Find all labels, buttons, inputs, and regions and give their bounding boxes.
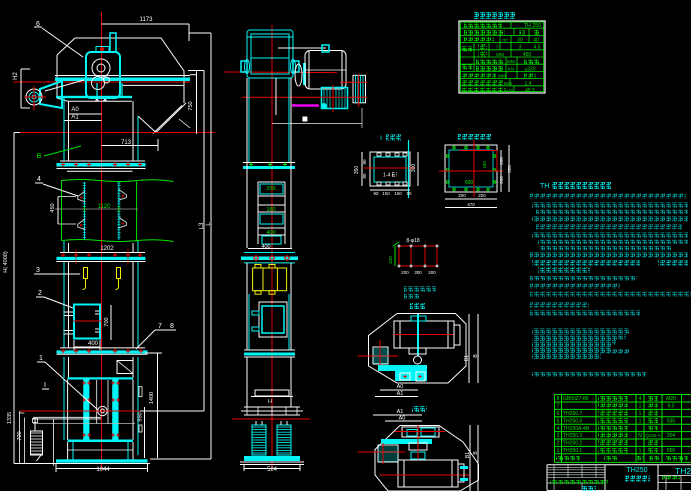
svg-text:470: 470	[467, 202, 475, 207]
svg-text:3: 3	[36, 267, 40, 274]
svg-text:150: 150	[394, 191, 402, 196]
svg-text:B1: B1	[465, 452, 471, 458]
svg-text:750: 750	[188, 101, 194, 110]
svg-text:8: 8	[170, 323, 174, 330]
svg-text:1.4: 1.4	[525, 81, 532, 87]
svg-text:1-4: 1-4	[383, 173, 390, 179]
svg-text:MM: MM	[496, 52, 504, 57]
svg-text:I: I	[380, 135, 382, 142]
svg-text:420: 420	[388, 256, 393, 264]
svg-text:6: 6	[557, 411, 560, 417]
svg-text:1: 1	[639, 411, 642, 417]
svg-text:TH250A-4B: TH250A-4B	[563, 426, 590, 432]
svg-text:A1: A1	[397, 391, 404, 397]
svg-text:4: 4	[639, 396, 642, 402]
svg-text:GB5027-86: GB5027-86	[563, 396, 589, 402]
svg-text:L3: L3	[199, 222, 205, 229]
svg-text:M20: M20	[666, 396, 676, 402]
svg-text:TH250.6: TH250.6	[563, 418, 582, 424]
svg-text:N: N	[638, 433, 642, 439]
svg-text:A0: A0	[399, 416, 406, 422]
svg-text:7: 7	[557, 404, 560, 410]
svg-text:TH250.3: TH250.3	[563, 433, 582, 439]
svg-text:80: 80	[362, 159, 367, 165]
svg-text:950: 950	[138, 412, 144, 421]
svg-text:1: 1	[639, 448, 642, 454]
svg-text:1: 1	[639, 418, 642, 424]
svg-text:I-I: I-I	[268, 399, 273, 405]
svg-text:1202: 1202	[100, 246, 114, 252]
svg-text:TH250.1: TH250.1	[563, 448, 582, 454]
svg-text:180: 180	[266, 207, 275, 213]
svg-text:H2: H2	[13, 72, 19, 80]
svg-text:MM: MM	[498, 74, 506, 79]
svg-text:40: 40	[533, 37, 539, 43]
svg-text:204: 204	[667, 433, 676, 439]
svg-text:80: 80	[362, 173, 367, 179]
svg-text:2: 2	[38, 290, 42, 297]
svg-text:400: 400	[261, 244, 270, 250]
svg-text:350: 350	[354, 166, 360, 175]
svg-text:1173: 1173	[140, 17, 154, 23]
svg-text:90: 90	[406, 191, 412, 196]
svg-text:TH2: TH2	[675, 466, 691, 476]
svg-text:1400: 1400	[149, 392, 155, 404]
svg-text:r/m: r/m	[507, 88, 514, 93]
svg-text:1: 1	[39, 355, 43, 362]
svg-text:535: 535	[667, 418, 676, 424]
svg-text:1335: 1335	[7, 412, 13, 424]
svg-text:200: 200	[478, 193, 486, 198]
svg-text:200: 200	[458, 193, 466, 198]
svg-text:160: 160	[482, 161, 487, 169]
svg-text:655: 655	[667, 448, 676, 454]
svg-text:TH250: TH250	[626, 467, 647, 474]
svg-text:2: 2	[557, 441, 560, 447]
svg-text:520: 520	[507, 165, 512, 173]
svg-text:450: 450	[50, 203, 56, 212]
svg-text:524: 524	[267, 467, 278, 473]
svg-text:1: 1	[557, 448, 560, 454]
svg-text:200: 200	[401, 270, 409, 275]
svg-text:TH250.7: TH250.7	[563, 411, 582, 417]
svg-text:A0: A0	[397, 384, 404, 390]
svg-text:300: 300	[411, 164, 417, 173]
svg-text:3: 3	[557, 433, 560, 439]
svg-text:1: 1	[639, 404, 642, 410]
svg-text:TH: TH	[540, 183, 549, 190]
svg-text:≥320: ≥320	[524, 66, 535, 72]
svg-text:4: 4	[557, 426, 560, 432]
svg-text:150: 150	[382, 191, 390, 196]
svg-text:200: 200	[499, 157, 504, 165]
svg-text:m³: m³	[502, 37, 508, 42]
svg-text:600: 600	[465, 180, 474, 186]
svg-text:30: 30	[517, 37, 523, 43]
svg-text:90: 90	[373, 191, 379, 196]
svg-text:I: I	[44, 382, 46, 389]
svg-text:MM: MM	[507, 59, 515, 64]
svg-text:3: 3	[519, 45, 522, 51]
svg-text:9.0: 9.0	[668, 404, 675, 410]
svg-text:B1: B1	[464, 355, 470, 361]
svg-text:700: 700	[17, 431, 23, 440]
svg-text:A1: A1	[397, 409, 404, 415]
svg-text:250: 250	[266, 186, 275, 192]
svg-text:300: 300	[414, 270, 422, 275]
svg-text:7: 7	[158, 323, 162, 330]
svg-text:A1: A1	[71, 115, 79, 121]
svg-text:KN: KN	[508, 66, 514, 71]
svg-text:1044: 1044	[96, 467, 110, 473]
svg-text:TH250.2: TH250.2	[563, 441, 582, 447]
svg-text:A0: A0	[71, 107, 79, 113]
svg-text:4.5: 4.5	[534, 45, 541, 51]
svg-text:B: B	[37, 153, 42, 160]
svg-text:8: 8	[557, 396, 560, 402]
svg-text:TH 250: TH 250	[524, 23, 541, 29]
svg-text:450: 450	[523, 52, 532, 58]
svg-text:4: 4	[37, 176, 41, 183]
svg-text:8-φ18: 8-φ18	[406, 238, 419, 244]
svg-text:1120: 1120	[98, 204, 112, 210]
svg-text:5: 5	[557, 418, 560, 424]
svg-text:l: l	[496, 45, 497, 51]
svg-text:200: 200	[499, 176, 504, 184]
svg-text:400: 400	[266, 230, 275, 236]
svg-text:48.5: 48.5	[525, 88, 535, 94]
svg-text:M/S: M/S	[504, 81, 512, 86]
svg-text:400: 400	[88, 341, 99, 347]
svg-text:Q235-A: Q235-A	[645, 433, 660, 438]
svg-text:H( 4000): H( 4000)	[3, 251, 9, 273]
svg-text:200: 200	[428, 270, 436, 275]
svg-text:700: 700	[104, 317, 110, 326]
